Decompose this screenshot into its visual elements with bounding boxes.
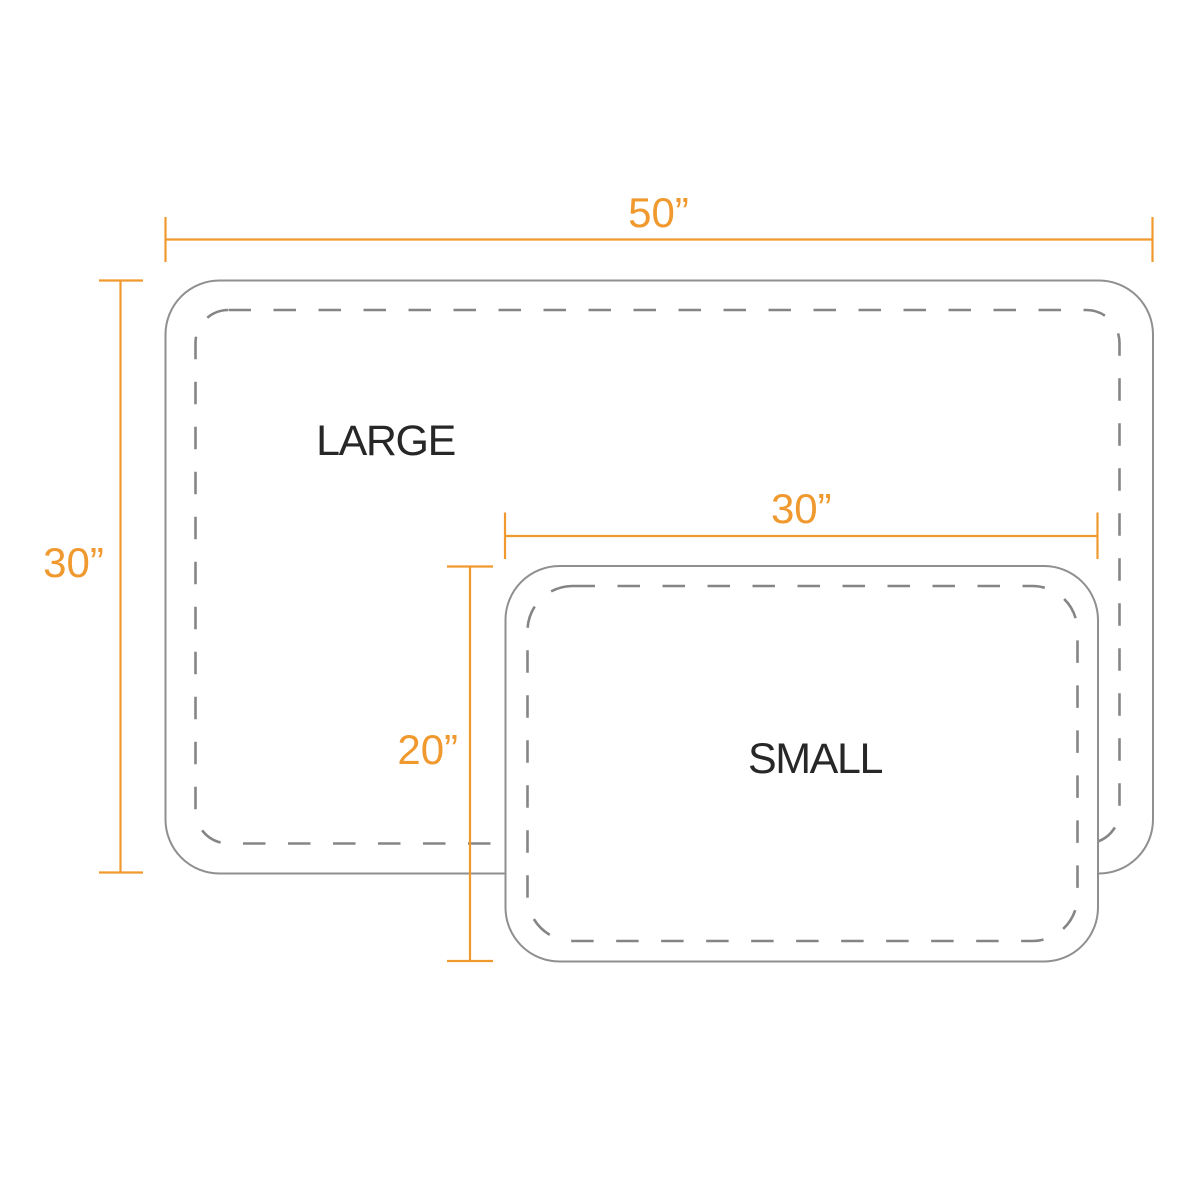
- svg-text:LARGE: LARGE: [316, 417, 455, 465]
- svg-text:20”: 20”: [397, 726, 458, 773]
- svg-text:30”: 30”: [771, 485, 832, 532]
- svg-text:SMALL: SMALL: [748, 735, 882, 783]
- svg-text:30”: 30”: [43, 539, 104, 586]
- svg-text:50”: 50”: [628, 189, 689, 236]
